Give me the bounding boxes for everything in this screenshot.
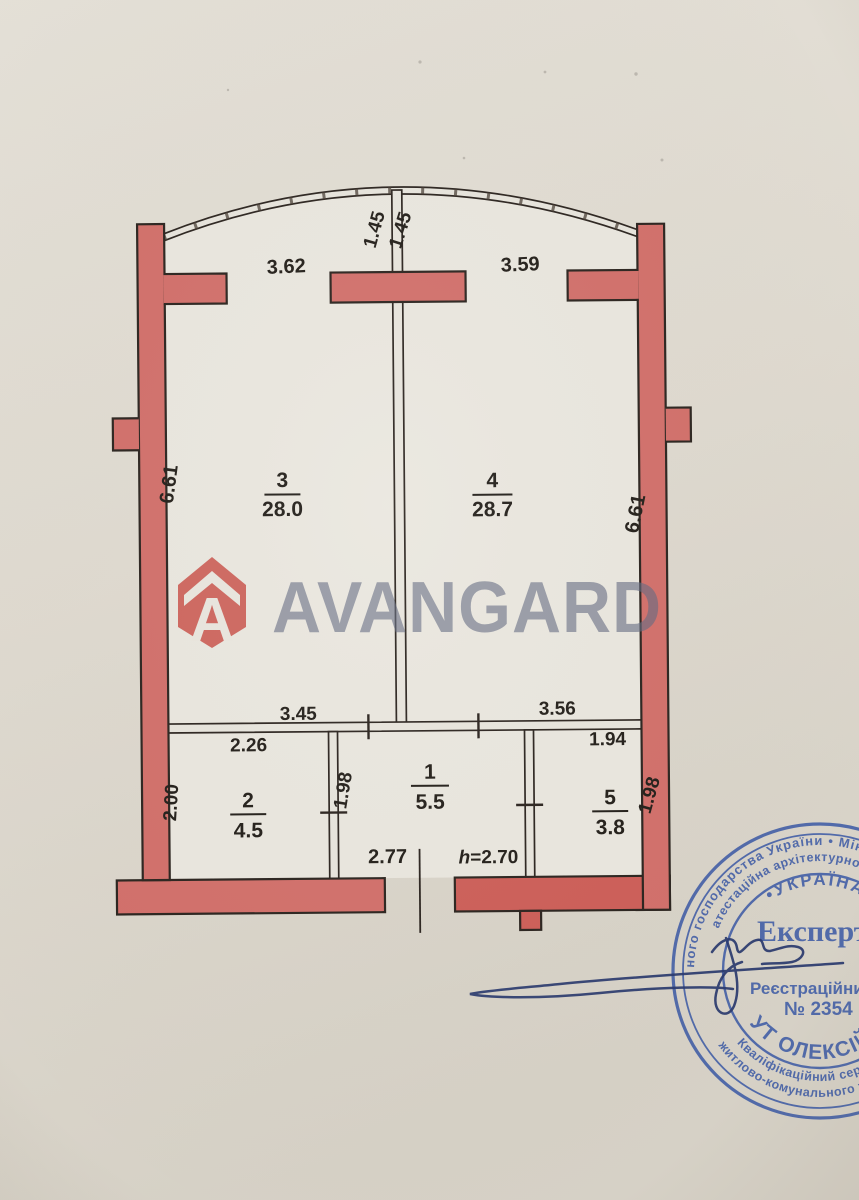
room-3-number: 3 <box>276 469 288 492</box>
floorplan: 3.62 1.45 1.45 3.59 6.61 6.61 3.45 3.56 … <box>111 184 695 935</box>
left-wall <box>137 224 170 880</box>
right-window-pier <box>567 270 638 301</box>
dim-inner-right: 3.56 <box>539 698 576 719</box>
brand-wordmark: AVANGARD <box>272 568 662 648</box>
scanned-floorplan-photo: 3.62 1.45 1.45 3.59 6.61 6.61 3.45 3.56 … <box>0 0 859 1200</box>
room-3-area: 28.0 <box>262 498 303 521</box>
stamp-registration-label: Реєстраційний <box>750 979 859 998</box>
room-4-area: 28.7 <box>472 498 513 521</box>
room-1-area: 5.5 <box>415 791 445 814</box>
dim-room2-depth: 2.00 <box>160 784 183 822</box>
stamp-title: Експерт <box>757 915 859 948</box>
room1-room5-divider <box>524 730 534 877</box>
floorplan-svg: 3.62 1.45 1.45 3.59 6.61 6.61 3.45 3.56 … <box>0 0 859 1200</box>
room-4-number: 4 <box>486 469 498 492</box>
dim-top-left: 3.62 <box>266 255 306 279</box>
entry-door-line <box>420 849 421 933</box>
ceiling-height-value: =2.70 <box>470 847 518 868</box>
stamp-registration-number: № 2354 <box>784 999 853 1020</box>
dim-inner-left: 3.45 <box>280 704 318 725</box>
dim-top-right: 3.59 <box>500 253 540 277</box>
right-outer-pier <box>666 407 691 441</box>
ceiling-height-symbol: h <box>459 847 471 868</box>
room-2-area: 4.5 <box>234 819 264 842</box>
bottom-wall-right <box>455 876 670 912</box>
logo-letter: A <box>190 586 235 655</box>
room-5-number: 5 <box>604 786 616 809</box>
dim-room2-width: 2.26 <box>230 735 267 756</box>
dim-room5-width: 1.94 <box>589 729 627 750</box>
room-2-number: 2 <box>242 789 254 812</box>
center-t-pier <box>330 271 465 302</box>
room-1-number: 1 <box>424 761 436 784</box>
bottom-wall-left <box>117 878 385 914</box>
dim-ceiling-height: h=2.70 <box>459 847 519 869</box>
left-outer-pier <box>113 418 139 450</box>
left-window-pier <box>163 274 226 305</box>
bottom-wall-stub <box>520 911 541 930</box>
dim-entry-width: 2.77 <box>368 846 407 868</box>
room-5-area: 3.8 <box>596 816 626 839</box>
